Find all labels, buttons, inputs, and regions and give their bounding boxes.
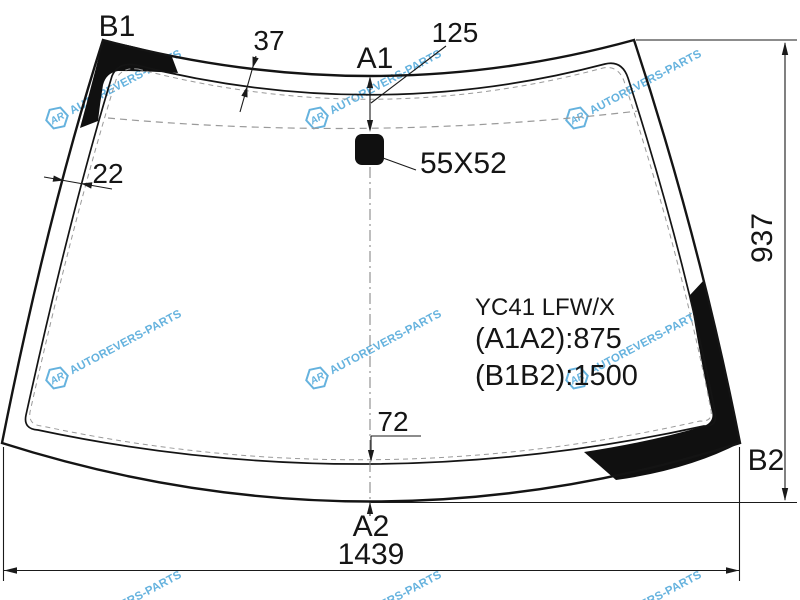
arrowhead-left xyxy=(4,567,17,573)
dim-height-label: 937 xyxy=(746,213,779,263)
glass-outer-outline xyxy=(2,40,740,502)
arrowhead-up xyxy=(782,42,788,55)
leader-line xyxy=(383,158,416,170)
arrowhead-right xyxy=(726,567,739,573)
mirror-mount-size-label: 55X52 xyxy=(420,147,507,180)
watermark xyxy=(40,562,186,600)
watermark xyxy=(40,301,186,395)
dim-side-band-label: 22 xyxy=(92,158,123,189)
watermark xyxy=(300,301,446,395)
part-info-block: YC41 LFW/X (A1A2):875 (B1B2):1500 xyxy=(475,294,638,392)
arrowhead xyxy=(241,86,247,98)
windshield-diagram-page: AR AUTOREVERS-PARTS 125 A1 B1 xyxy=(0,0,800,600)
arrowhead-down xyxy=(367,120,373,132)
dim-mount-offset-label: 125 xyxy=(432,17,479,48)
shade-band-dashed-line xyxy=(108,111,638,128)
part-code: YC41 LFW/X xyxy=(475,294,615,321)
watermark xyxy=(560,41,706,135)
arrowhead-down xyxy=(782,488,788,501)
dim-bottom-band-72: 72 xyxy=(367,406,421,516)
watermark xyxy=(560,562,706,600)
dim-top-band-label: 37 xyxy=(253,25,284,56)
part-dim-b1b2: (B1B2):1500 xyxy=(475,360,638,392)
part-dim-a1a2: (A1A2):875 xyxy=(475,323,622,355)
mirror-mount-callout: 55X52 xyxy=(383,147,507,180)
dim-bottom-band-label: 72 xyxy=(377,406,408,437)
windshield-technical-drawing: AR AUTOREVERS-PARTS 125 A1 B1 xyxy=(0,0,800,600)
point-label-b2: B2 xyxy=(748,444,785,477)
mirror-mount-pad xyxy=(355,134,384,165)
point-label-b1: B1 xyxy=(99,10,136,43)
point-label-a1: A1 xyxy=(357,42,394,75)
dim-width-label: 1439 xyxy=(338,538,405,571)
arrowhead xyxy=(81,182,92,188)
arrowhead xyxy=(253,57,259,69)
